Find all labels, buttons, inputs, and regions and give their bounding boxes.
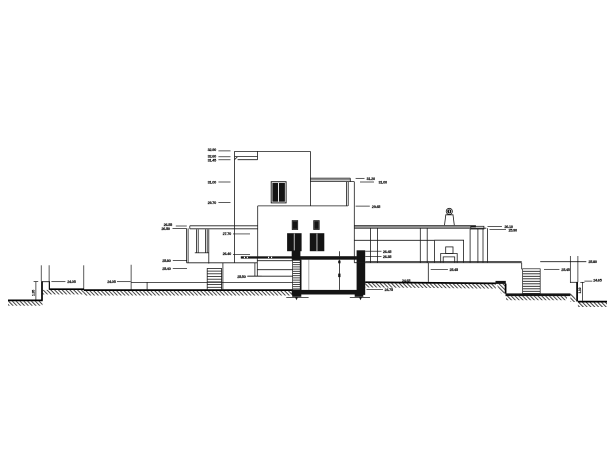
svg-text:29.45: 29.45 — [372, 205, 381, 209]
svg-text:25.80: 25.80 — [588, 260, 597, 264]
svg-text:31.20: 31.20 — [367, 177, 376, 181]
svg-text:25.80: 25.80 — [162, 259, 171, 263]
svg-text:25.45: 25.45 — [561, 268, 570, 272]
svg-text:25.45: 25.45 — [450, 268, 459, 272]
svg-text:31.45: 31.45 — [208, 159, 217, 163]
svg-text:31.00: 31.00 — [379, 180, 388, 184]
svg-text:25.50: 25.50 — [237, 275, 246, 279]
svg-text:25.40: 25.40 — [162, 267, 171, 271]
svg-text:25.90: 25.90 — [509, 228, 518, 232]
svg-text:24.65: 24.65 — [402, 279, 411, 283]
svg-text:27.70: 27.70 — [223, 232, 232, 236]
svg-text:26.40: 26.40 — [223, 252, 232, 256]
svg-text:26.45: 26.45 — [383, 250, 392, 254]
svg-text:32.90: 32.90 — [208, 148, 217, 152]
svg-text:24.65: 24.65 — [593, 279, 602, 283]
svg-text:29.70: 29.70 — [208, 201, 217, 205]
svg-text:24.05: 24.05 — [107, 280, 116, 284]
svg-text:31.00: 31.00 — [208, 181, 217, 185]
svg-text:1.10: 1.10 — [578, 287, 582, 293]
svg-text:24.05: 24.05 — [67, 280, 76, 284]
svg-text:24.75: 24.75 — [385, 288, 394, 292]
svg-text:26.35: 26.35 — [383, 255, 392, 259]
svg-text:26.50: 26.50 — [161, 227, 170, 231]
svg-text:1.35: 1.35 — [32, 290, 36, 296]
